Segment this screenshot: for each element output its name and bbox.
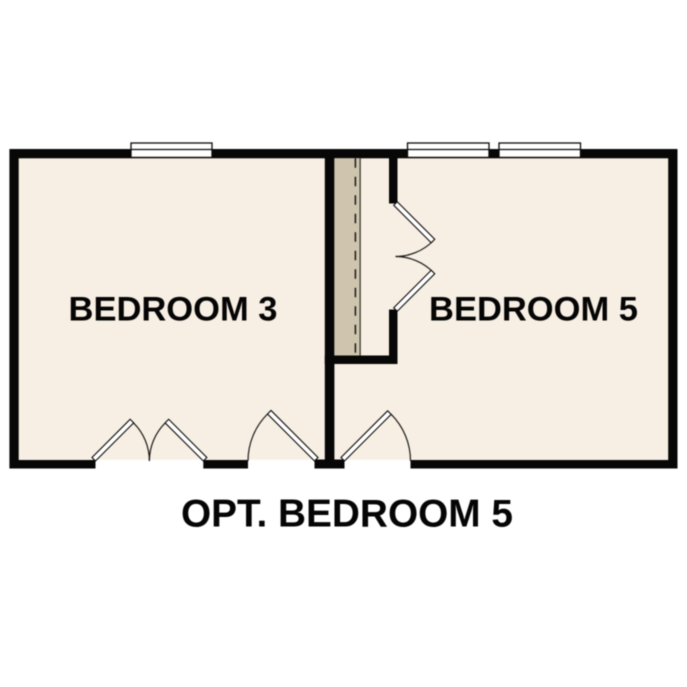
svg-text:OPT. BEDROOM 5: OPT. BEDROOM 5 bbox=[181, 493, 513, 536]
svg-text:BEDROOM 3: BEDROOM 3 bbox=[69, 291, 278, 329]
svg-text:BEDROOM 5: BEDROOM 5 bbox=[429, 291, 638, 329]
